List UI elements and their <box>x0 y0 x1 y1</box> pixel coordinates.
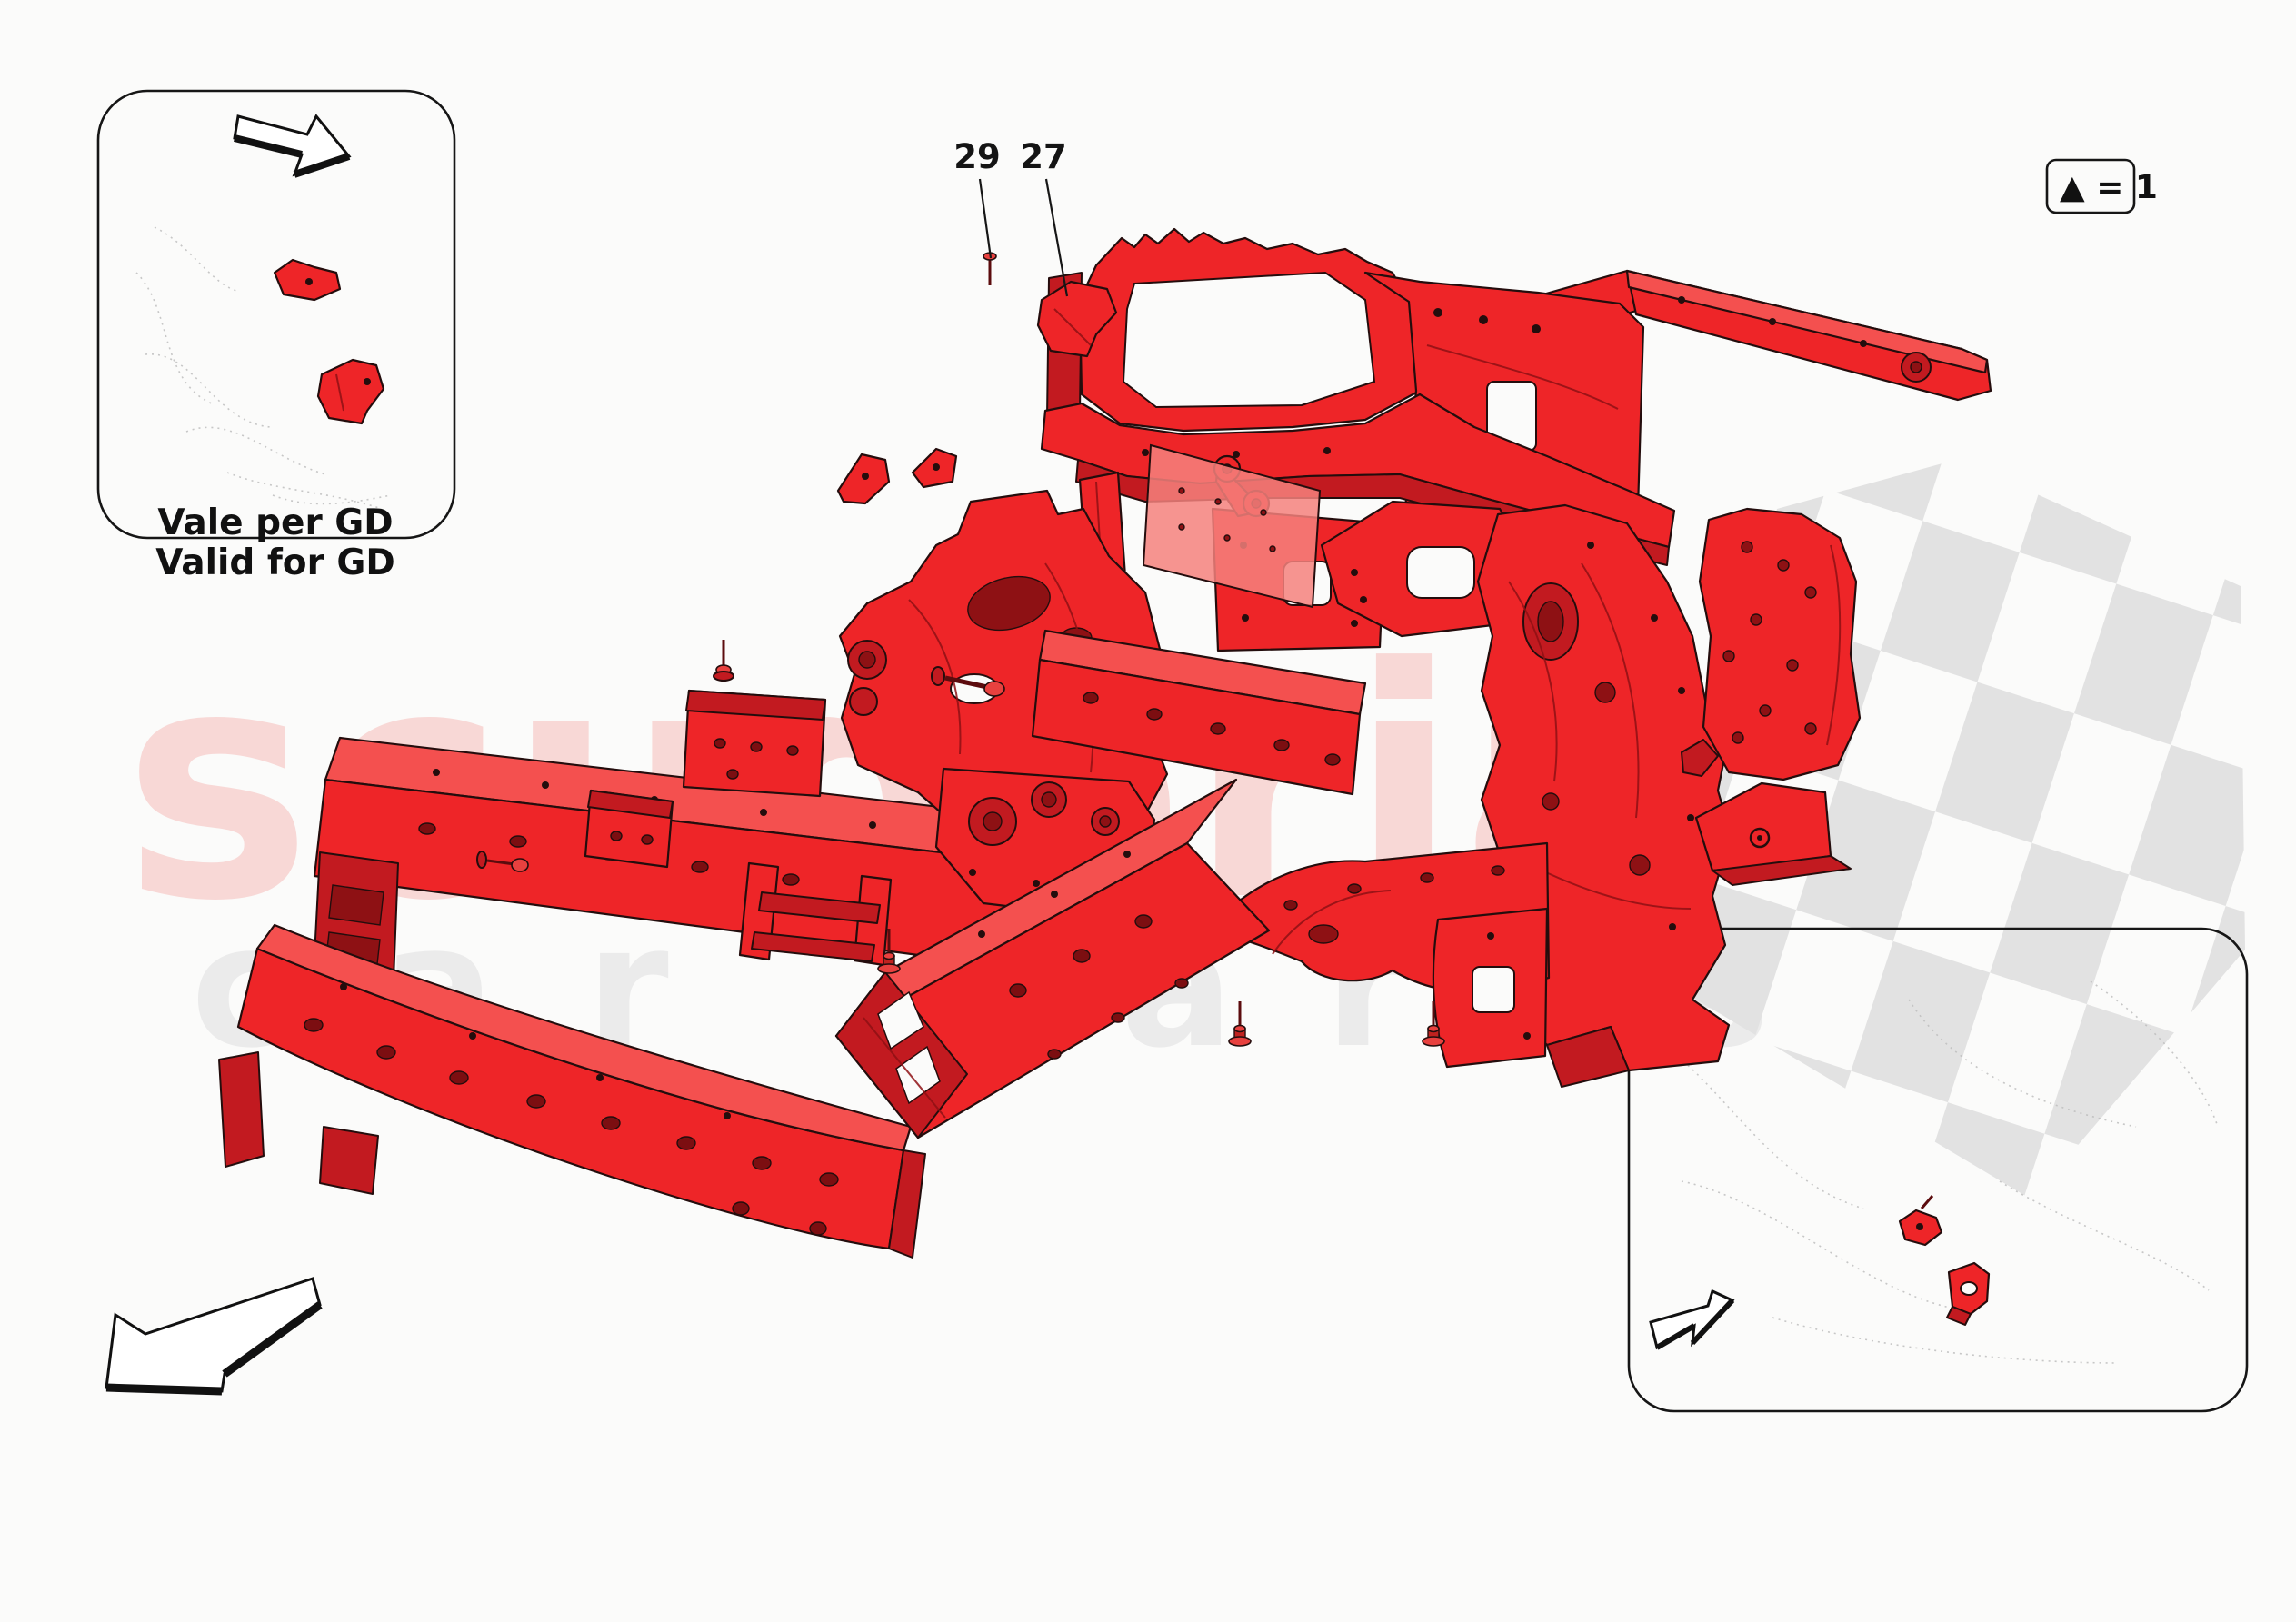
legend-text: ▲ = 1 <box>2060 169 2158 206</box>
callout-0-29: 29 <box>953 137 1001 258</box>
part-bracket-33-inset <box>318 360 384 423</box>
part-bracket-7 <box>684 691 825 796</box>
inset-caption-line2: Valid for GD <box>155 542 395 583</box>
direction-arrow-ne-icon <box>1651 1291 1732 1348</box>
part-panel-18 <box>1700 509 1860 780</box>
part-bracket-30-inset <box>275 260 340 300</box>
part-bracket-30-main <box>913 449 956 487</box>
callout-label-29: 29 <box>953 137 1001 176</box>
parts-diagram: scuderia car parts Vale per GD <box>0 0 2296 1622</box>
callout-1-27: 27 <box>1020 137 1067 296</box>
part-31 <box>1947 1263 1989 1325</box>
direction-arrow-sw-icon <box>106 1279 320 1391</box>
direction-arrow-se-icon <box>235 116 349 174</box>
inset-caption-line1: Vale per GD <box>157 503 393 543</box>
inset-top-left-border <box>98 91 454 538</box>
leader-line-29 <box>980 179 991 258</box>
part-bracket-6 <box>585 791 673 867</box>
part-bracket-33-main <box>838 454 889 503</box>
callout-label-27: 27 <box>1020 137 1067 176</box>
legend: ▲ = 1 <box>2047 160 2158 213</box>
part-34 <box>1900 1196 1942 1245</box>
callouts-layer: 2927 <box>953 137 1067 296</box>
inset-top-left: Vale per GD Valid for GD <box>98 91 454 583</box>
